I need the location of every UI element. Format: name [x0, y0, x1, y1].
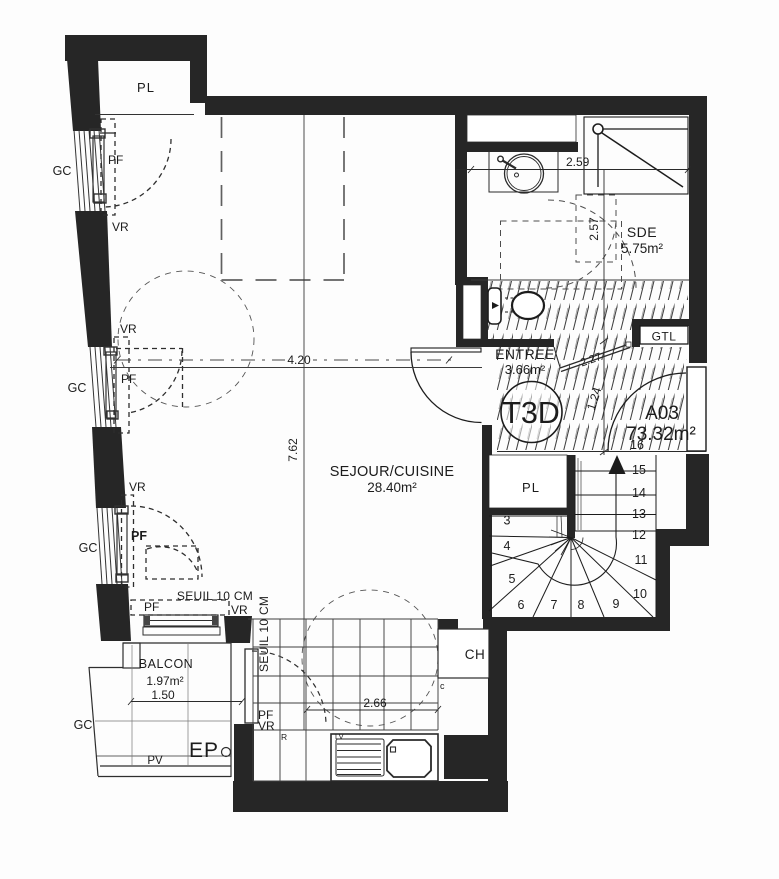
svg-text:PL: PL — [137, 80, 155, 95]
svg-text:CH: CH — [465, 647, 486, 662]
svg-text:SEJOUR/CUISINE: SEJOUR/CUISINE — [330, 464, 455, 480]
svg-text:8: 8 — [578, 598, 585, 612]
svg-text:R: R — [281, 732, 287, 742]
svg-text:PF: PF — [144, 600, 159, 614]
svg-text:PF: PF — [108, 153, 123, 167]
svg-text:1.50: 1.50 — [151, 688, 175, 702]
svg-text:SEUIL 10 CM: SEUIL 10 CM — [177, 589, 253, 603]
svg-text:c: c — [440, 681, 445, 691]
svg-text:PF: PF — [121, 372, 136, 386]
svg-text:15: 15 — [632, 463, 646, 477]
svg-text:1.97m²: 1.97m² — [146, 674, 183, 688]
svg-text:GC: GC — [53, 164, 72, 178]
svg-text:12: 12 — [632, 528, 646, 542]
svg-text:2.57: 2.57 — [587, 217, 601, 241]
svg-text:2.66: 2.66 — [363, 696, 387, 710]
svg-text:3: 3 — [504, 514, 511, 528]
svg-text:73.32m²: 73.32m² — [626, 424, 696, 445]
svg-text:A03: A03 — [645, 403, 679, 424]
svg-text:4: 4 — [504, 539, 511, 553]
svg-text:28.40m²: 28.40m² — [367, 480, 417, 495]
svg-text:5.75m²: 5.75m² — [621, 241, 664, 256]
svg-text:GC: GC — [74, 718, 93, 732]
svg-text:LV: LV — [335, 732, 344, 741]
svg-text:GTL: GTL — [652, 330, 677, 344]
svg-text:7.62: 7.62 — [286, 438, 300, 462]
svg-text:GC: GC — [68, 381, 87, 395]
svg-text:5: 5 — [509, 572, 516, 586]
svg-text:PL: PL — [522, 480, 540, 495]
svg-text:14: 14 — [632, 486, 646, 500]
svg-text:PV: PV — [147, 755, 163, 767]
svg-text:10: 10 — [633, 587, 647, 601]
svg-text:BALCON: BALCON — [139, 657, 193, 671]
svg-text:SDE: SDE — [627, 224, 657, 240]
svg-text:GC: GC — [79, 541, 98, 555]
svg-text:PF: PF — [131, 529, 147, 543]
svg-text:7: 7 — [551, 598, 558, 612]
svg-text:11: 11 — [635, 553, 648, 567]
svg-text:VR: VR — [112, 220, 129, 234]
svg-text:VR: VR — [129, 480, 146, 494]
svg-text:ENTREE: ENTREE — [495, 346, 555, 362]
svg-text:T3D: T3D — [502, 396, 560, 430]
svg-text:VR: VR — [231, 603, 248, 617]
svg-text:VR: VR — [258, 719, 275, 733]
svg-text:6: 6 — [518, 598, 525, 612]
svg-text:SEUIL 10 CM: SEUIL 10 CM — [257, 596, 271, 672]
svg-text:EP: EP — [189, 739, 219, 762]
svg-text:4.20: 4.20 — [287, 353, 311, 367]
svg-text:9: 9 — [613, 597, 620, 611]
svg-text:13: 13 — [632, 507, 646, 521]
svg-text:3.66m²: 3.66m² — [505, 362, 546, 377]
svg-text:VR: VR — [120, 322, 137, 336]
svg-text:2.59: 2.59 — [566, 155, 590, 169]
